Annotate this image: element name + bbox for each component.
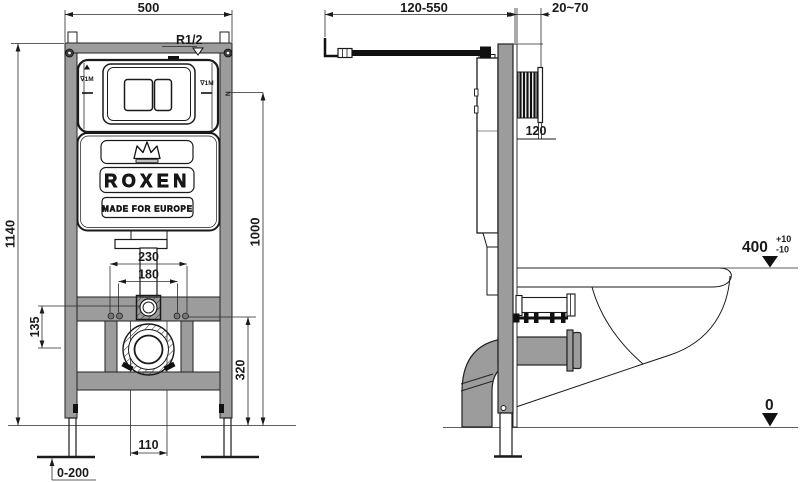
datum-seat-height: 400 +10 -10 (742, 234, 791, 268)
outlet-flange-1 (567, 330, 573, 371)
level-mark-right-label: ∇1M (199, 79, 213, 87)
supply-valve (338, 49, 352, 58)
side-cistern-clip (475, 106, 479, 113)
flush-pipe-flange-right (567, 294, 575, 316)
side-cistern-clip (475, 89, 479, 96)
fixing-rod-nut (524, 313, 529, 323)
supply-wall-bracket (325, 38, 338, 56)
side-view: 400 +10 -10 0 (325, 0, 798, 457)
flush-button-small (155, 80, 172, 111)
dim-frame-width-value: 500 (138, 0, 160, 15)
bowl-inner-curve (592, 287, 643, 364)
dim-frame-width: 500 (65, 0, 232, 42)
dim-connector: 120 (517, 122, 556, 139)
front-frame-strut-right (181, 321, 193, 372)
side-cistern-body (477, 58, 498, 233)
dim-bolt-outer-value: 230 (138, 250, 159, 264)
foot-tube-right (224, 418, 231, 457)
outlet-flange-2 (573, 333, 581, 369)
bowl-seat (517, 268, 731, 287)
side-cistern (475, 55, 499, 296)
front-frame-right-column (220, 43, 232, 418)
side-flush-drop-pipe (487, 247, 498, 295)
front-view: R1/2 ∇1M ∇1M N ROXEN MADE FOR EUROPE (3, 0, 297, 480)
column-clip-right (219, 404, 224, 413)
flush-button-large (125, 80, 153, 111)
datum-triangle-icon (762, 413, 778, 427)
fixing-rod-anchor (514, 314, 520, 323)
dim-drain-width: 110 (131, 390, 168, 456)
datum-triangle-icon (762, 256, 778, 268)
front-frame-strut-left (105, 321, 117, 372)
dim-floor-level-value: 0 (765, 397, 774, 414)
front-frame-left-column (65, 43, 77, 418)
rail-mark-label: N (225, 91, 232, 96)
fixing-rod-nut (550, 313, 555, 323)
dim-frame-height-value: 1140 (3, 220, 18, 248)
dim-seat-height-value: 400 (742, 239, 768, 256)
crown-base (136, 160, 158, 162)
dim-seat-tol-plus: +10 (776, 234, 791, 244)
brand-tagline: MADE FOR EUROPE (102, 205, 193, 214)
level-mark-left-label: ∇1M (79, 75, 93, 83)
flush-pipe-flange-left (516, 296, 522, 316)
front-screw-right-center (227, 52, 230, 55)
supply-elbow-fitting (480, 47, 491, 59)
front-screw-left-center (68, 52, 71, 55)
corrugated-flange (538, 68, 543, 123)
technical-drawing: R1/2 ∇1M ∇1M N ROXEN MADE FOR EUROPE (0, 0, 800, 482)
dim-wall-gap-value: 20~70 (552, 0, 589, 15)
side-foot-tube (500, 413, 512, 456)
drain-opening (121, 321, 175, 375)
brand-name: ROXEN (104, 171, 191, 191)
drain-elbow-assembly (461, 330, 581, 427)
dim-connector-value: 120 (526, 124, 547, 138)
water-supply (325, 38, 491, 59)
inlet-fitting-inner-ring (143, 302, 154, 313)
dim-drain-center-height-value: 320 (234, 360, 248, 381)
dim-leg-adjust-value: 0-200 (57, 466, 89, 480)
foot-tube-left (69, 418, 76, 457)
front-frame-top-bar (65, 43, 232, 53)
drain-inner-ring (135, 336, 163, 364)
drawing-canvas: R1/2 ∇1M ∇1M N ROXEN MADE FOR EUROPE (0, 0, 800, 482)
cistern-bracket (115, 240, 167, 249)
corrugated-connector (518, 68, 543, 123)
dim-bolt-inner-value: 180 (138, 268, 159, 282)
column-clip-left (73, 404, 78, 413)
dim-depth-range-value: 120-550 (400, 0, 448, 15)
dim-plate-center-height-value: 1000 (248, 218, 263, 247)
dim-depth-range: 120-550 (325, 0, 515, 43)
front-corner-tab-left (68, 32, 77, 43)
fixing-rod-nut (534, 313, 539, 323)
inlet-fitting (137, 296, 161, 320)
front-corner-tab-right (220, 32, 229, 43)
dim-wall-gap: 20~70 (508, 0, 589, 67)
dim-leg-adjust: 0-200 (50, 459, 96, 481)
side-frame-column (498, 44, 513, 413)
dim-frame-height: 1140 (3, 44, 65, 426)
inlet-thread-label: R1/2 (176, 33, 202, 47)
flush-pipe-body (522, 298, 567, 313)
datum-floor-level: 0 (762, 397, 778, 427)
cistern-neck (131, 231, 167, 240)
supply-pipe (352, 50, 480, 56)
dim-seat-tol-minus: -10 (776, 245, 789, 255)
side-frame-bolt (501, 406, 506, 411)
side-cistern-taper (483, 233, 498, 247)
bowl-connection (514, 294, 576, 323)
dim-inlet-drain-offset-value: 135 (28, 317, 42, 338)
dim-drain-width-value: 110 (138, 438, 158, 452)
fixing-rod-nut (561, 313, 566, 323)
